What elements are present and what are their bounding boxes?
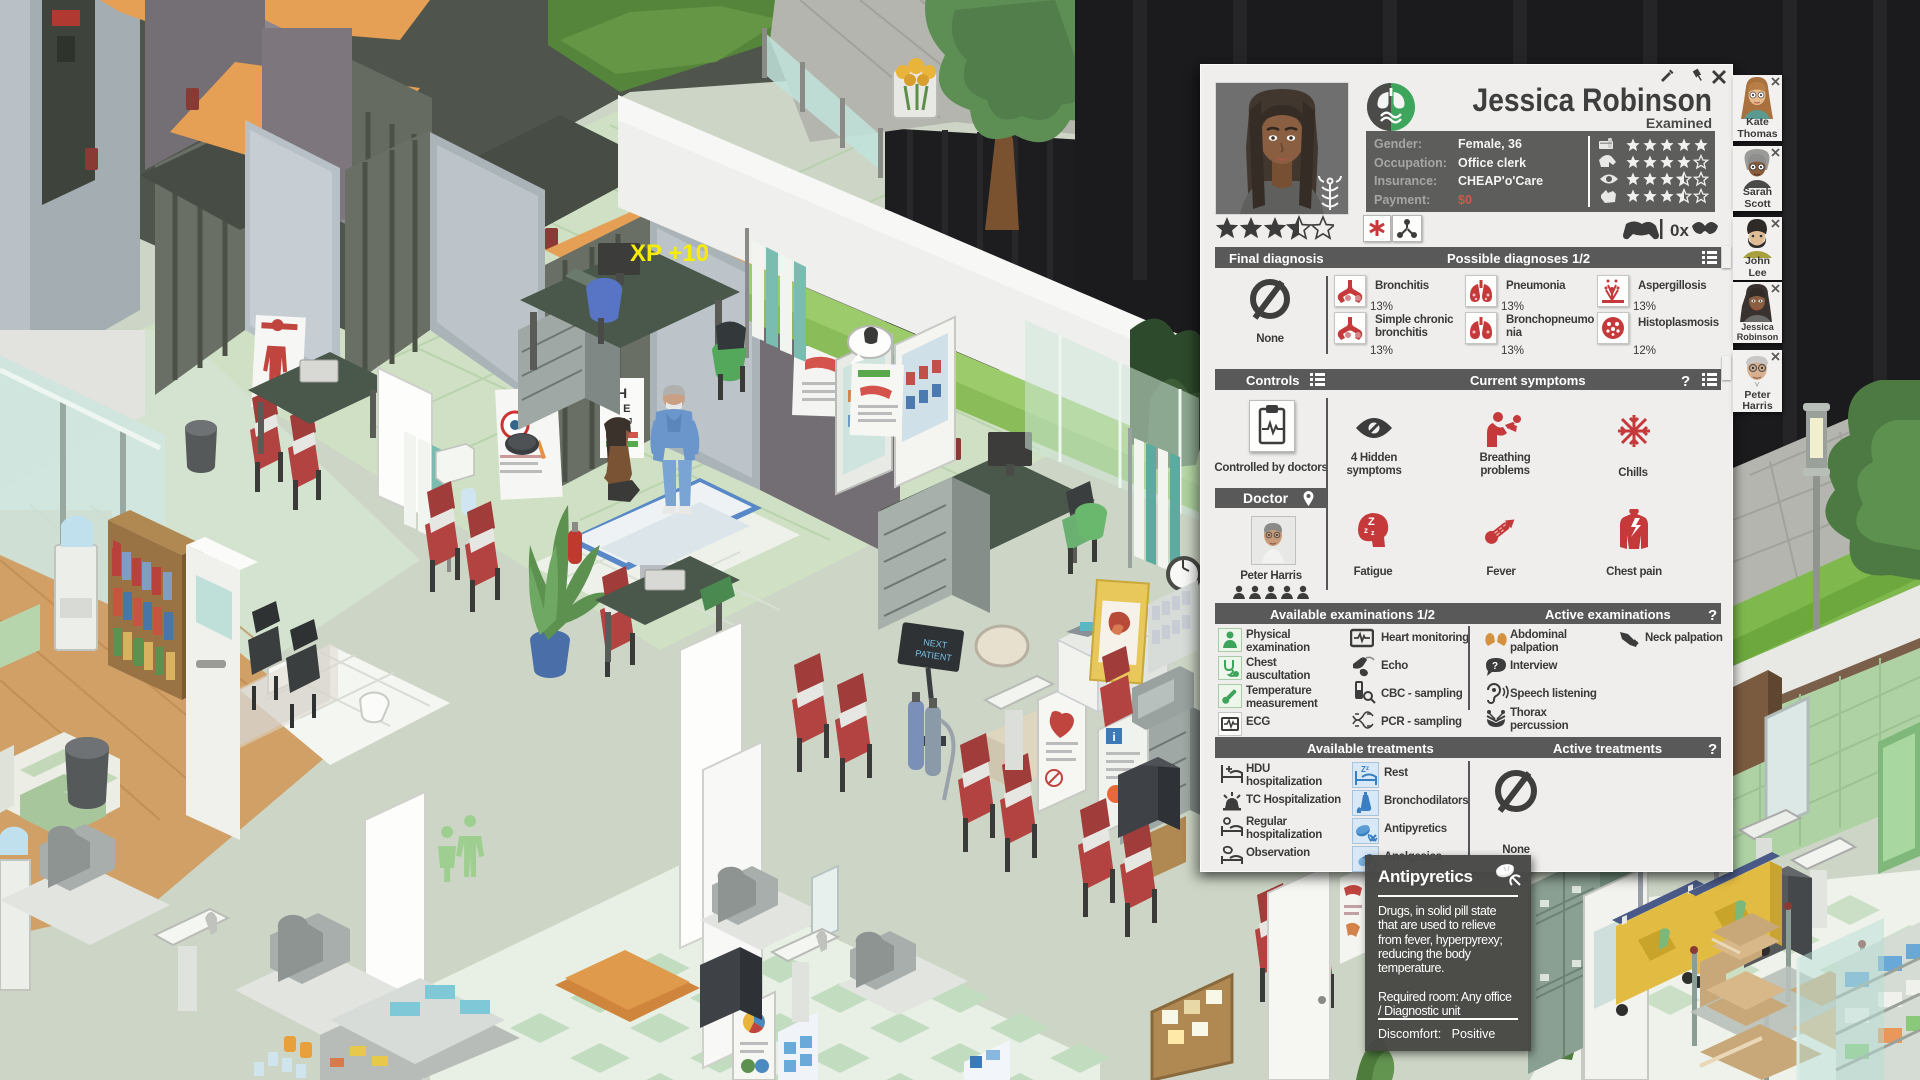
svg-text:Z: Z — [1368, 516, 1375, 528]
svg-text:?: ? — [1492, 661, 1498, 672]
svg-text:0x: 0x — [1670, 221, 1689, 240]
svg-text:z: z — [1371, 530, 1375, 537]
svg-text:i: i — [1112, 730, 1115, 744]
svg-text:z: z — [1364, 526, 1368, 535]
svg-text:z: z — [1366, 766, 1369, 772]
svg-text:XP +10: XP +10 — [630, 240, 709, 267]
